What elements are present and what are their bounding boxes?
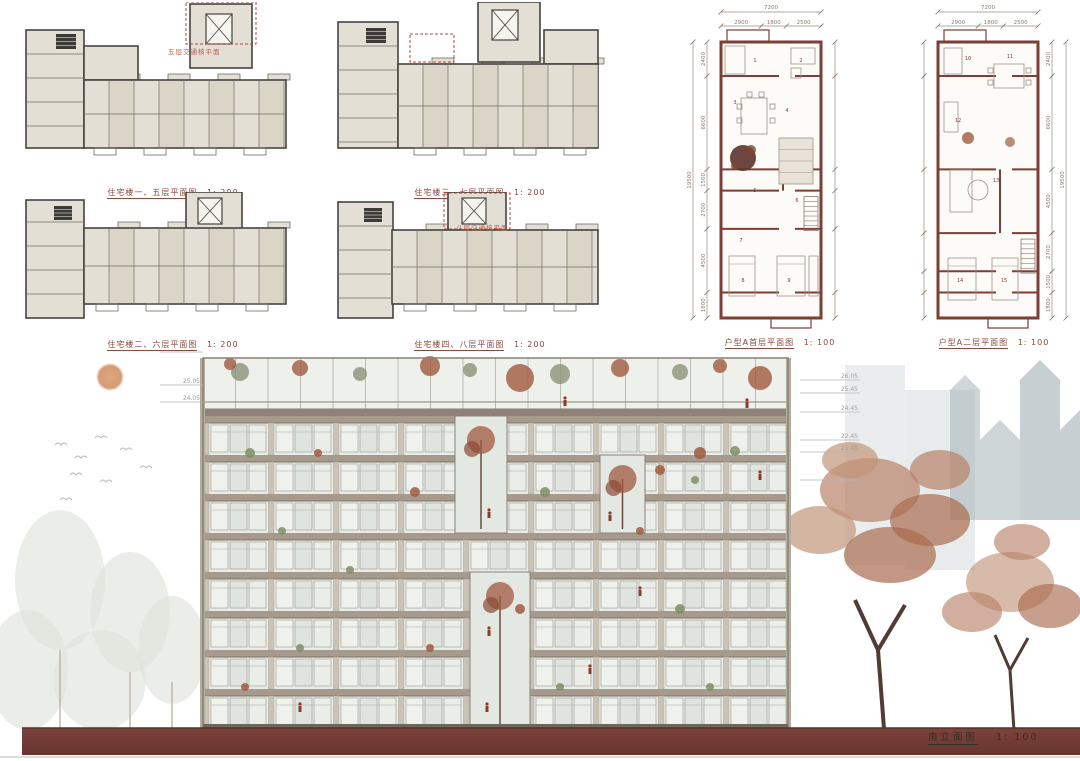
svg-text:2400: 2400 [701,51,707,65]
svg-text:2700: 2700 [701,202,707,216]
svg-text:19500: 19500 [1060,171,1066,189]
svg-text:2: 2 [799,58,802,64]
svg-text:7: 7 [739,238,742,244]
unit-plan-A-ground: 7200290018002500240066001500270045001800… [655,0,875,348]
floor-plan-building1-drawing [18,2,318,180]
svg-text:10: 10 [965,56,971,62]
svg-text:1500: 1500 [1046,274,1052,288]
svg-text:2500: 2500 [1014,20,1028,26]
svg-text:1800: 1800 [701,298,707,312]
svg-text:7200: 7200 [981,5,995,11]
unit-plan-A-upper-drawing: 7200290018002500240066004500270015001800… [878,0,1080,330]
svg-text:4: 4 [785,108,788,114]
floor-plan-building2: 住宅楼二、六层平面图 1: 200 [18,192,328,350]
presentation-board: 五层交通核平面 住宅楼一、五层平面图 1: 200 住宅楼三、七层平面图 1: … [0,0,1080,761]
unit-plan-A-ground-drawing: 7200290018002500240066001500270045001800… [655,0,875,330]
elevation-caption-scale: 1: 100 [996,732,1038,743]
unitA2-caption-text: 户型A二层平面图 [939,338,1008,349]
svg-text:19.45: 19.45 [841,473,858,480]
svg-text:2500: 2500 [797,20,811,26]
svg-text:8: 8 [741,278,744,284]
svg-text:24.05: 24.05 [183,395,200,402]
svg-text:25.45: 25.45 [841,386,858,393]
svg-text:12: 12 [955,118,961,124]
elevation-caption: 南立面图 1: 100 [928,729,1038,743]
svg-text:3: 3 [733,100,736,106]
floor-plan-building3: 住宅楼三、七层平面图 1: 200 [330,2,630,198]
svg-text:25.05: 25.05 [183,378,200,385]
unitA1-caption: 户型A首层平面图 1: 100 [655,337,875,348]
svg-text:1800: 1800 [1046,298,1052,312]
svg-text:6: 6 [795,198,798,204]
svg-text:15: 15 [1001,278,1007,284]
svg-text:2700: 2700 [1046,245,1052,259]
svg-text:26.50: 26.50 [183,350,200,352]
floor-plan-building4-drawing [330,192,630,332]
unitA2-caption: 户型A二层平面图 1: 100 [878,337,1080,348]
unitA1-caption-text: 户型A首层平面图 [725,338,794,349]
unit-plan-A-upper: 7200290018002500240066004500270015001800… [878,0,1080,348]
unitA1-caption-scale: 1: 100 [804,338,836,347]
plan4-caption-scale: 1: 200 [514,340,546,349]
plan4-core-note: 八层交通核平面 [456,222,509,232]
svg-text:6600: 6600 [1046,115,1052,129]
svg-text:1800: 1800 [767,20,781,26]
svg-text:21.45: 21.45 [841,445,858,452]
svg-text:7200: 7200 [764,5,778,11]
svg-text:5: 5 [753,188,756,194]
plan3-caption-scale: 1: 200 [207,340,239,349]
svg-text:6600: 6600 [701,115,707,129]
floor-plan-building3-drawing [330,2,630,180]
svg-text:24.45: 24.45 [841,405,858,412]
svg-text:1: 1 [753,58,756,64]
plan4-caption: 住宅楼四、八层平面图 1: 200 [330,339,630,350]
svg-text:1800: 1800 [984,20,998,26]
svg-text:22.45: 22.45 [841,433,858,440]
svg-text:13: 13 [993,178,999,184]
svg-text:2900: 2900 [951,20,965,26]
svg-text:9: 9 [787,278,790,284]
svg-text:19500: 19500 [687,171,693,189]
svg-text:14: 14 [957,278,963,284]
svg-text:4500: 4500 [701,253,707,267]
floor-plan-building4: 八层交通核平面 住宅楼四、八层平面图 1: 200 [330,192,630,350]
svg-text:1500: 1500 [701,173,707,187]
board-bottom-edge [0,756,1080,758]
plan3-caption: 住宅楼二、六层平面图 1: 200 [18,339,328,350]
unitA2-caption-scale: 1: 100 [1018,338,1050,347]
svg-text:2400: 2400 [1046,51,1052,65]
floor-plan-building2-drawing [18,192,318,332]
svg-text:11: 11 [1007,54,1013,60]
svg-text:2900: 2900 [734,20,748,26]
south-elevation-rendering: 26.5025.0524.0526.0525.4524.4522.4521.45… [0,350,1080,761]
svg-text:26.05: 26.05 [841,373,858,380]
plan1-core-note: 五层交通核平面 [168,46,221,56]
floor-plan-building1: 五层交通核平面 住宅楼一、五层平面图 1: 200 [18,2,328,198]
svg-text:4500: 4500 [1046,194,1052,208]
elevation-caption-text: 南立面图 [928,732,978,745]
